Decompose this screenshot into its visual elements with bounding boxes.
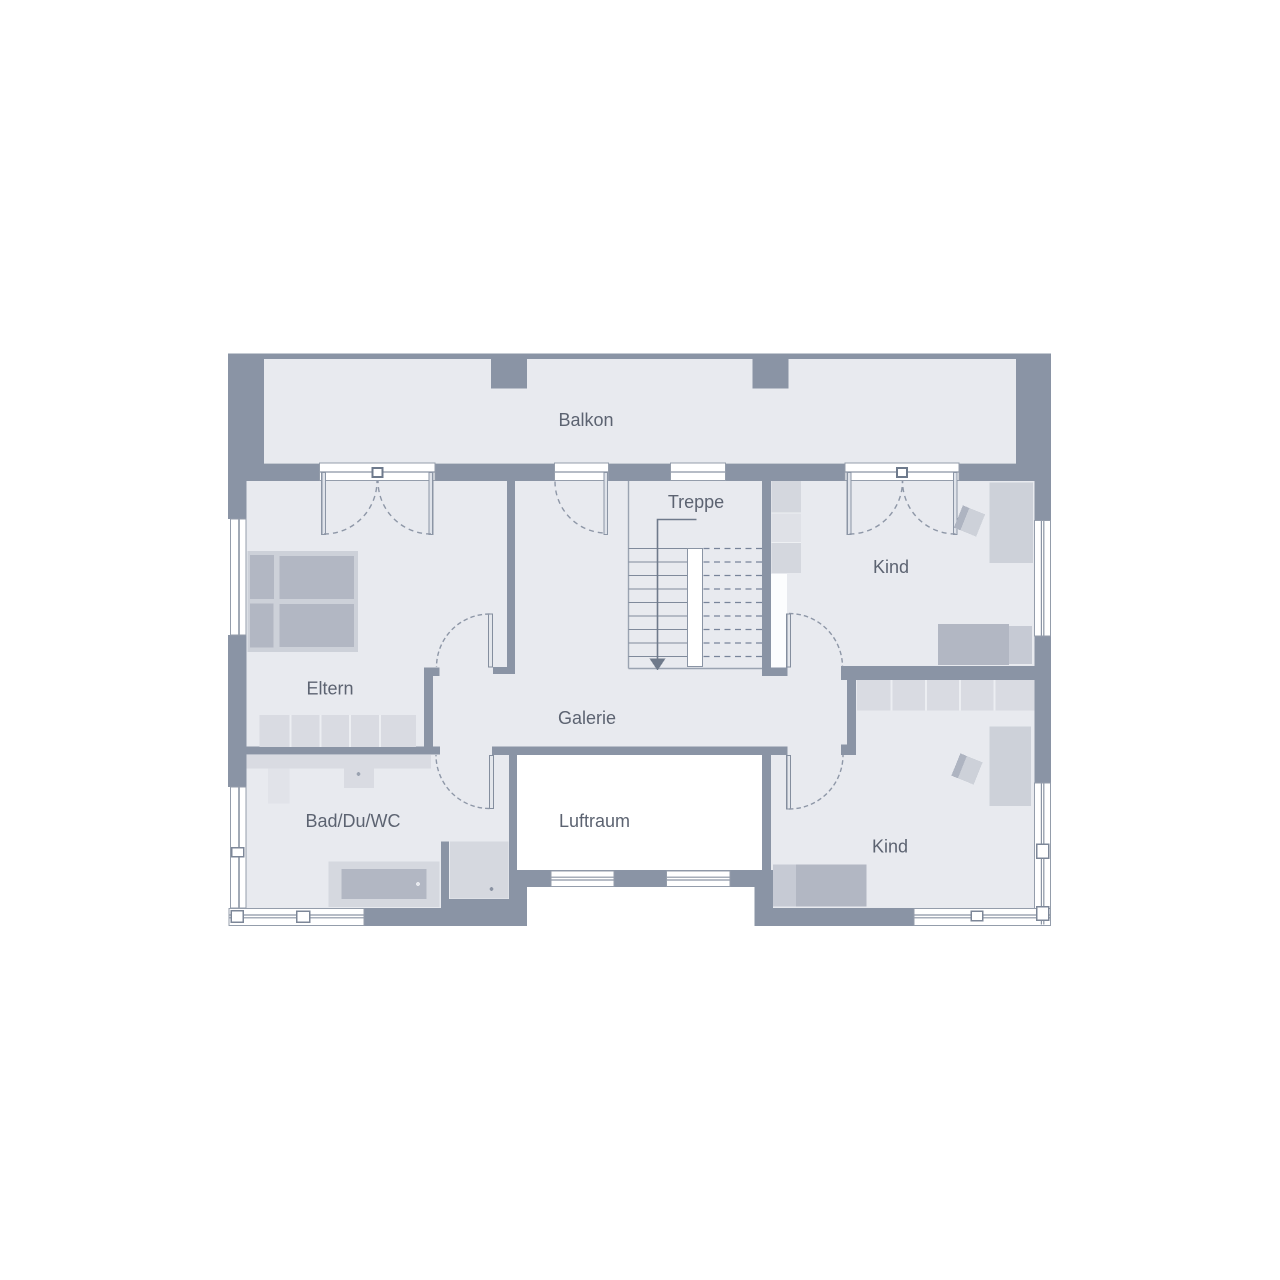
svg-text:Bad/Du/WC: Bad/Du/WC: [305, 811, 400, 831]
svg-text:Galerie: Galerie: [558, 708, 616, 728]
svg-text:Kind: Kind: [872, 837, 908, 857]
svg-text:Eltern: Eltern: [306, 679, 353, 699]
svg-text:Luftraum: Luftraum: [559, 811, 630, 831]
svg-text:Balkon: Balkon: [558, 410, 613, 430]
svg-text:Kind: Kind: [873, 557, 909, 577]
svg-text:Treppe: Treppe: [668, 492, 724, 512]
